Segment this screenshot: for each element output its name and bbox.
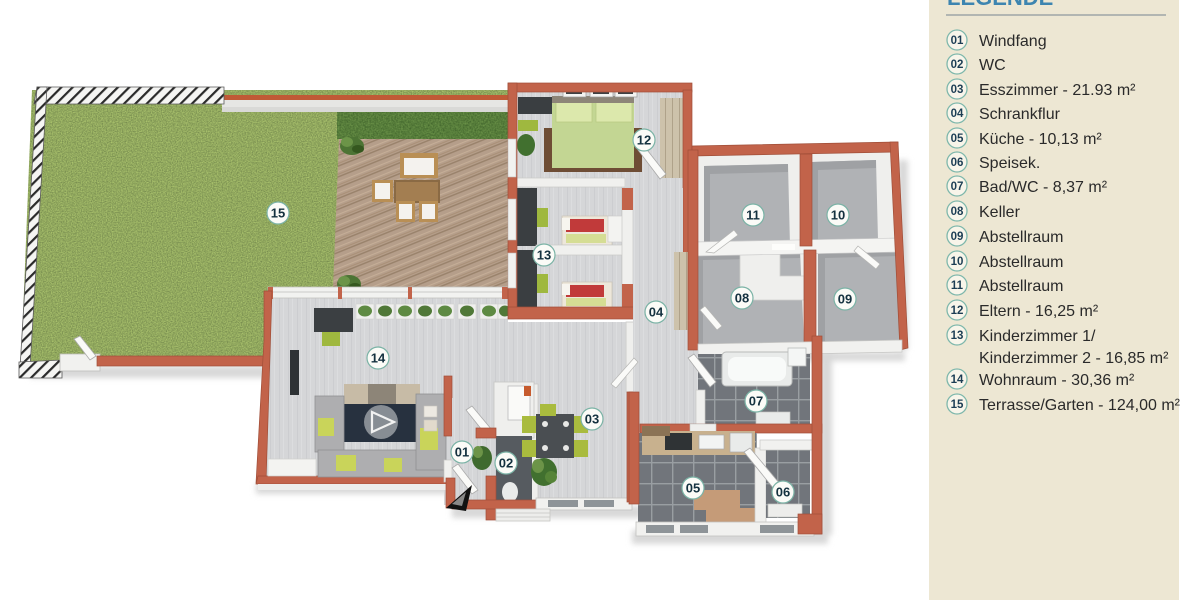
svg-text:14: 14 xyxy=(951,374,964,386)
svg-text:13: 13 xyxy=(537,248,551,263)
svg-text:02: 02 xyxy=(499,456,513,471)
svg-text:12: 12 xyxy=(637,133,651,148)
svg-text:Kinderzimmer 1/: Kinderzimmer 1/ xyxy=(979,328,1096,345)
svg-text:LEGENDE: LEGENDE xyxy=(947,0,1053,10)
svg-text:Windfang: Windfang xyxy=(979,33,1047,50)
svg-text:10: 10 xyxy=(951,256,964,268)
svg-text:09: 09 xyxy=(838,292,852,307)
svg-text:08: 08 xyxy=(951,206,964,218)
svg-text:Abstellraum: Abstellraum xyxy=(979,278,1063,295)
svg-text:03: 03 xyxy=(951,84,964,96)
svg-text:Speisek.: Speisek. xyxy=(979,155,1040,172)
svg-text:06: 06 xyxy=(951,157,964,169)
svg-text:08: 08 xyxy=(735,291,749,306)
svg-text:Wohnraum - 30,36 m²: Wohnraum - 30,36 m² xyxy=(979,372,1135,389)
svg-text:Schrankflur: Schrankflur xyxy=(979,106,1061,123)
svg-text:11: 11 xyxy=(951,280,964,292)
svg-text:03: 03 xyxy=(585,412,599,427)
svg-text:01: 01 xyxy=(455,445,469,460)
svg-text:14: 14 xyxy=(371,351,386,366)
svg-text:Abstellraum: Abstellraum xyxy=(979,229,1063,246)
svg-text:01: 01 xyxy=(951,35,964,47)
svg-text:07: 07 xyxy=(749,394,763,409)
svg-text:11: 11 xyxy=(746,208,760,223)
svg-text:Abstellraum: Abstellraum xyxy=(979,254,1063,271)
svg-text:04: 04 xyxy=(951,108,964,120)
svg-text:WC: WC xyxy=(979,57,1006,74)
svg-text:04: 04 xyxy=(649,305,664,320)
svg-text:07: 07 xyxy=(951,181,964,193)
svg-text:02: 02 xyxy=(951,59,964,71)
svg-text:06: 06 xyxy=(776,485,790,500)
svg-text:05: 05 xyxy=(951,133,964,145)
svg-text:Terrasse/Garten - 124,00 m²: Terrasse/Garten - 124,00 m² xyxy=(979,397,1181,414)
svg-text:Bad/WC - 8,37 m²: Bad/WC - 8,37 m² xyxy=(979,179,1108,196)
svg-text:Esszimmer - 21.93 m²: Esszimmer - 21.93 m² xyxy=(979,82,1136,99)
svg-text:15: 15 xyxy=(951,399,964,411)
svg-text:Kinderzimmer 2 - 16,85 m²: Kinderzimmer 2 - 16,85 m² xyxy=(979,350,1169,367)
svg-text:10: 10 xyxy=(831,208,845,223)
svg-text:09: 09 xyxy=(951,231,964,243)
svg-text:Küche - 10,13 m²: Küche - 10,13 m² xyxy=(979,131,1102,148)
svg-text:12: 12 xyxy=(951,305,964,317)
svg-text:Eltern - 16,25 m²: Eltern - 16,25 m² xyxy=(979,303,1099,320)
svg-text:05: 05 xyxy=(686,481,700,496)
svg-text:15: 15 xyxy=(271,206,285,221)
svg-text:13: 13 xyxy=(951,330,964,342)
svg-text:Keller: Keller xyxy=(979,204,1021,221)
